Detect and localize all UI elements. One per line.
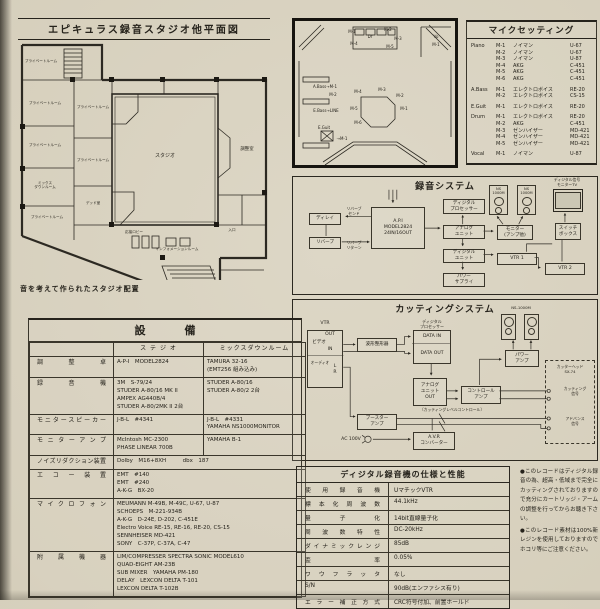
- diagram-node: リバーブ: [309, 237, 341, 249]
- equipment-corner-cell: [30, 343, 114, 357]
- diagram-node: ディジタル信号モニターTV: [543, 177, 591, 188]
- spec-row: 周波数特性DC-20kHz: [297, 525, 509, 539]
- diagram-node: ディジタルプロセッサー: [409, 318, 455, 329]
- diagram-node: M-4: [347, 40, 361, 46]
- mic-setting-row: M-2エレクトロボイスCS-15: [471, 93, 592, 100]
- mic-setting-table: マイクセッティング PianoM-1ノイマンU-67M-2ノイマンU-67M-3…: [466, 20, 597, 165]
- diagram-node: モニター(アンプ他): [497, 225, 533, 240]
- equipment-title: 設 備: [29, 320, 301, 342]
- diagram-node: スイッチボックス: [555, 223, 581, 240]
- floorplan-canvas: プライベートルームプライベートルームプライベートルームミックスダウンルームプライ…: [14, 40, 272, 280]
- mic-setting-row: DrumM-1エレクトロボイスRE-20: [471, 114, 592, 121]
- recording-system-panel: 録音システム ディレイリバーブリバーブセンドリバーブリターンA.P.IMODEL…: [292, 176, 598, 295]
- diagram-node: 波形整形器: [357, 338, 397, 352]
- diagram-node: スタジオ: [136, 150, 194, 162]
- diagram-node: M-1: [429, 41, 443, 47]
- mic-setting-row: VocalM-1ノイマンU-87: [471, 151, 592, 158]
- diagram-node: M-2: [325, 91, 341, 97]
- equipment-row: 調整卓A-P-I MODEL2824TAMURA 32-16(EMT256 組み…: [30, 356, 306, 377]
- cutting-system-panel: カッティングシステム VTROUTビデオINオ: [292, 299, 598, 461]
- diagram-node: [307, 330, 343, 388]
- diagram-node: M-3: [391, 35, 405, 41]
- equipment-row: 録音機3M S-79/24STUDER A-80/16 MK IIAMPEX A…: [30, 377, 306, 414]
- diagram-node: プライベートルーム: [20, 56, 62, 66]
- diagram-node: NS1000M: [517, 185, 536, 215]
- diagram-node: インフォメーションルーム: [142, 245, 212, 254]
- equipment-table-section: 設 備 ス テ ジ オ ミックスダウンルーム 調整卓A-P-I MODEL282…: [28, 318, 302, 598]
- diagram-node: ディレイ: [309, 213, 341, 225]
- equipment-header-row: ス テ ジ オ ミックスダウンルーム: [30, 343, 306, 357]
- spec-row: エラー補正方式CRC符号付加、前置ホールド: [297, 595, 509, 608]
- record-care-notes: ●このレコードはディジタル録音の為、超高・低域まで完全にカッティングされておりま…: [520, 468, 598, 557]
- equipment-row: エコー装置EMT #140EMT #240A-K-G BX-20: [30, 470, 306, 499]
- digital-spec-rows: 使用録音機UマチックVTR標本化周波数44.1kHz量子化14bit直線量子化周…: [297, 483, 509, 608]
- diagram-node: ブースターアンプ: [357, 414, 397, 430]
- mic-placement-diagram: DrM-1M-2M-3M-4M-5VoM-1A.Bass→M-1M-2E.Bas…: [292, 18, 458, 168]
- mic-setting-title: マイクセッティング: [467, 22, 596, 39]
- diagram-node: DATA IN: [414, 333, 450, 340]
- diagram-node: →M-1: [333, 135, 351, 141]
- mic-setting-row: M-2ノイマンU-67: [471, 50, 592, 57]
- diagram-node: Vo: [429, 33, 443, 39]
- diagram-node: プライベートルーム: [24, 212, 70, 222]
- diagram-node: M-2: [393, 92, 407, 98]
- diagram-node: 応接ロビー: [114, 228, 154, 237]
- diagram-node: DATA OUT: [414, 350, 450, 357]
- diagram-node: リバーブセンド: [341, 207, 367, 217]
- note-item: ●このレコードはディジタル録音の為、超高・低域まで完全にカッティングされておりま…: [520, 468, 598, 525]
- cutting-system-nodes: VTROUTビデオINオーディオLR波形整形器ディジタルプロセッサーDATA I…: [293, 300, 597, 460]
- recording-system-nodes: ディレイリバーブリバーブセンドリバーブリターンA.P.IMODEL282424I…: [293, 177, 597, 294]
- diagram-node: [524, 314, 539, 340]
- diagram-node: リバーブリターン: [341, 241, 367, 251]
- diagram-node: プライベートルーム: [74, 155, 112, 165]
- diagram-node: M-6: [351, 119, 365, 125]
- mic-setting-row: M-6AKGC-451: [471, 76, 592, 83]
- diagram-node: 〔カッティングレベルコントロール〕: [393, 406, 511, 414]
- diagram-node: VTR 1: [497, 253, 537, 265]
- diagram-node: E.Bass→LINE: [305, 107, 347, 113]
- diagram-node: カッティング信号: [557, 386, 593, 398]
- spec-row: ダイナミックレンジ85dB: [297, 539, 509, 553]
- mic-setting-rows: PianoM-1ノイマンU-67M-2ノイマンU-67M-3ノイマンU-87M-…: [467, 39, 596, 163]
- diagram-node: Dr: [363, 33, 377, 40]
- diagram-node: コントロールアンプ: [461, 386, 501, 404]
- digital-spec-table: ディジタル録音機の仕様と性能 使用録音機UマチックVTR標本化周波数44.1kH…: [296, 466, 510, 609]
- mic-setting-row: M-5AKGC-451: [471, 69, 592, 76]
- diagram-node: M-2: [381, 26, 395, 32]
- mic-setting-row: M-5ゼンハイザーMD-421: [471, 141, 592, 148]
- diagram-node: 入口: [222, 226, 242, 235]
- spec-row: 歪率0.05%: [297, 553, 509, 567]
- mic-setting-row: M-4ゼンハイザーMD-421: [471, 134, 592, 141]
- diagram-node: ディジタルプロセッサー: [443, 199, 485, 214]
- diagram-node: 調整室: [230, 145, 264, 155]
- album-liner-page: { "colors":{"paper":"#d6cfbc","ink":"#26…: [0, 0, 600, 600]
- diagram-node: プライベートルーム: [22, 98, 68, 108]
- mic-setting-row: E.GuitM-1エレクトロボイスRE-20: [471, 104, 592, 111]
- diagram-node: [501, 314, 516, 340]
- floorplan-caption: 音を考えて作られたスタジオ配置: [20, 284, 140, 294]
- equipment-col-mixdown: ミックスダウンルーム: [204, 343, 306, 357]
- diagram-node: R: [331, 370, 339, 376]
- diagram-node: NS-1000M: [497, 304, 545, 312]
- diagram-node: M-3: [375, 86, 389, 92]
- diagram-node: アドバンス信号: [557, 416, 593, 428]
- digital-spec-title: ディジタル録音機の仕様と性能: [297, 467, 509, 483]
- diagram-node: プライベートルーム: [74, 102, 112, 112]
- diagram-node: AC 100V: [337, 436, 365, 444]
- diagram-node: A.P.IMODEL282424IN/16OUT: [371, 207, 425, 249]
- diagram-node: E.Guit: [313, 124, 335, 130]
- diagram-node: M-4: [351, 88, 365, 94]
- diagram-node: A.V.Rコンバーター: [413, 432, 455, 450]
- spec-row: 使用録音機UマチックVTR: [297, 483, 509, 497]
- diagram-node: プライベートルーム: [22, 140, 68, 150]
- mic-setting-row: PianoM-1ノイマンU-67: [471, 43, 592, 50]
- diagram-node: IN: [323, 347, 337, 353]
- diagram-node: M-5: [383, 43, 397, 49]
- equipment-row: マイクロフォンMEUMANN M-49B, M-49C, U-67, U-87S…: [30, 498, 306, 551]
- equipment-table: ス テ ジ オ ミックスダウンルーム 調整卓A-P-I MODEL2824TAM…: [29, 342, 306, 597]
- diagram-node: ミックスダウンルーム: [22, 178, 68, 192]
- note-item: ●このレコード素材は100%新レジンを使用しておりますのでホコリ等にご注意くださ…: [520, 527, 598, 555]
- equipment-row: ノイズリダクション装置Dolby M16+8XH dbx 187: [30, 456, 306, 470]
- spec-row: ワウフラッタなし: [297, 567, 509, 581]
- diagram-node: VTR: [307, 320, 343, 328]
- diagram-node: アナログユニット: [443, 225, 485, 239]
- mic-setting-row: M-3ノイマンU-87: [471, 56, 592, 63]
- spec-row: S/N90dB(エンファシス有り): [297, 581, 509, 595]
- mic-diagram-labels: DrM-1M-2M-3M-4M-5VoM-1A.Bass→M-1M-2E.Bas…: [295, 21, 455, 165]
- mic-setting-row: M-2AKGC-451: [471, 121, 592, 128]
- diagram-node: OUT: [321, 332, 339, 338]
- diagram-node: NS1000M: [489, 185, 508, 215]
- equipment-col-studio: ス テ ジ オ: [114, 343, 204, 357]
- diagram-node: パワーアンプ: [505, 350, 539, 367]
- floorplan-titlebar: エピキュラス録音スタジオ他平面図: [18, 18, 270, 40]
- diagram-node: ビデオ: [308, 340, 330, 346]
- equipment-row: 附属機器LIM/COMPRESSER SPECTRA SONIC MODEL61…: [30, 551, 306, 596]
- diagram-node: A.Bass→M-1: [305, 83, 345, 89]
- diagram-node: M-1: [397, 105, 411, 111]
- diagram-node: カッターヘッドSX-74: [547, 363, 593, 376]
- diagram-node: アナログユニットOUT: [413, 378, 447, 406]
- floorplan-room-labels: プライベートルームプライベートルームプライベートルームミックスダウンルームプライ…: [14, 40, 272, 280]
- diagram-node: ディジタルユニット: [443, 249, 485, 263]
- diagram-node: M-5: [347, 105, 361, 111]
- diagram-node: パワーサプライ: [443, 273, 485, 287]
- spec-row: 標本化周波数44.1kHz: [297, 497, 509, 511]
- diagram-node: [553, 189, 583, 212]
- spec-row: 量子化14bit直線量子化: [297, 511, 509, 525]
- equipment-row: モニターアンプMcIntosh MC-2300PHASE LINEAR 700B…: [30, 435, 306, 456]
- diagram-node: オーディオ: [307, 360, 333, 366]
- diagram-node: デッド室: [76, 198, 110, 208]
- floorplan-title: エピキュラス録音スタジオ他平面図: [18, 21, 270, 36]
- equipment-row: モニタースピーカーJ-B-L #4341J-B-L #4331YAMAHA NS…: [30, 414, 306, 435]
- diagram-node: M-1: [345, 28, 359, 34]
- mic-setting-row: M-4AKGC-451: [471, 63, 592, 70]
- diagram-node: VTR 2: [545, 263, 585, 275]
- floorplan-section: エピキュラス録音スタジオ他平面図: [14, 12, 272, 300]
